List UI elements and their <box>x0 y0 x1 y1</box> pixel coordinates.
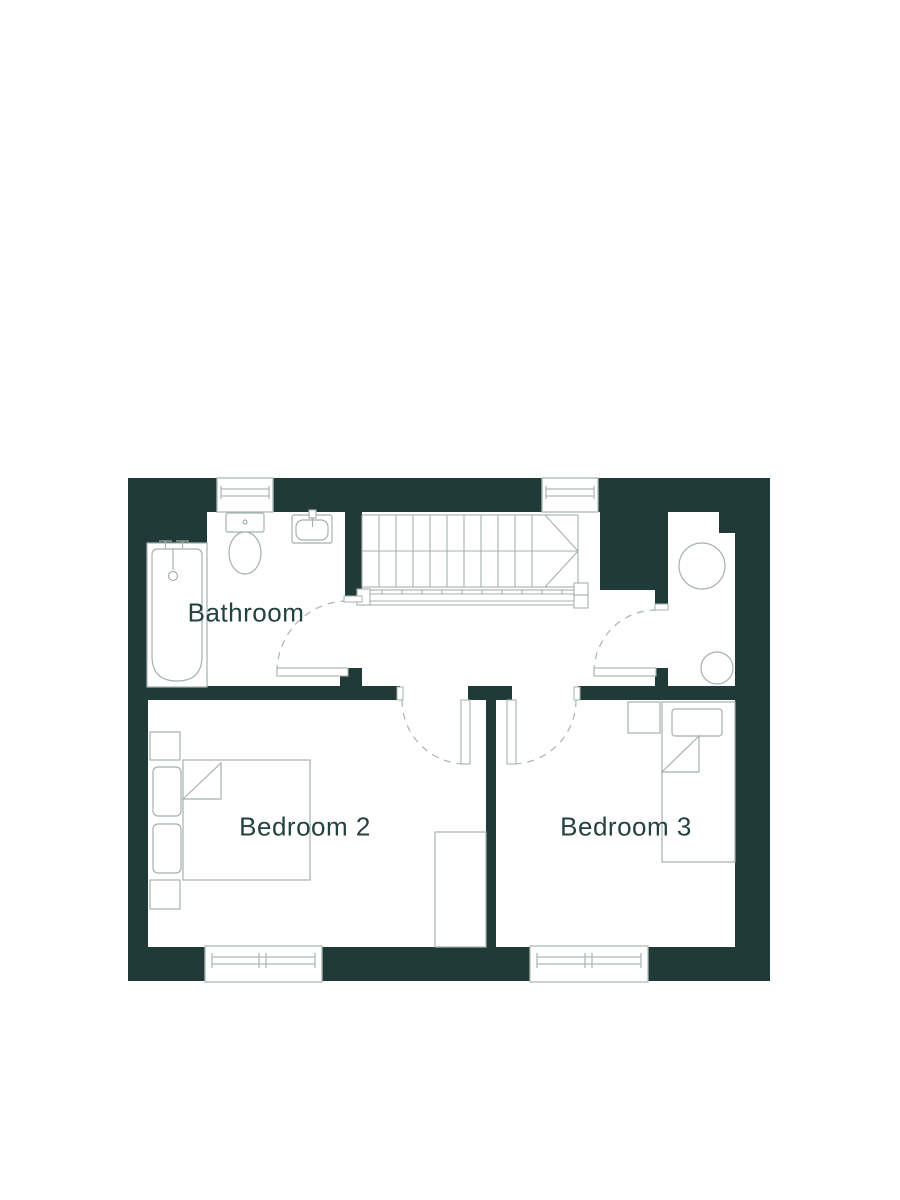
wall-bedroom-divider <box>486 700 496 947</box>
door-leaf <box>507 700 516 764</box>
bedside-table <box>150 880 180 909</box>
door-leaf <box>594 668 656 676</box>
wardrobe <box>435 832 486 947</box>
room-label-bedroom-2: Bedroom 2 <box>239 812 371 843</box>
window-top-landing <box>542 478 598 512</box>
wall-landing-center <box>468 686 512 700</box>
door-leaf <box>461 700 470 764</box>
pillow <box>153 824 181 873</box>
newel-post-right-1 <box>574 583 588 595</box>
door-jamb <box>655 604 668 610</box>
basin-tap <box>309 510 316 518</box>
newel-post-right-2 <box>574 595 588 608</box>
staircase <box>362 515 578 587</box>
basin <box>292 510 332 543</box>
bath-drain <box>169 572 178 581</box>
bedroom-3-door <box>507 687 580 764</box>
wall-cupboard-notch <box>719 512 735 533</box>
room-label-bedroom-3: Bedroom 3 <box>560 812 692 843</box>
cupboard-door <box>594 604 668 676</box>
window-bedroom-3 <box>530 946 648 982</box>
room-label-bathroom: Bathroom <box>188 598 305 629</box>
toilet <box>226 513 264 574</box>
bedside-table <box>150 732 180 760</box>
pillow <box>153 767 181 816</box>
wall-left <box>128 478 148 981</box>
floor-plan-svg <box>0 0 900 1200</box>
cupboard-cylinder-small <box>701 652 733 684</box>
floor-plan: Bathroom Bedroom 2 Bedroom 3 <box>0 0 900 1200</box>
bedroom-2-door <box>397 687 470 764</box>
wall-corner-bathroom <box>128 478 207 543</box>
wall-cupboard-stub-bottom <box>655 668 668 686</box>
door-jamb <box>574 687 580 700</box>
cupboard-cylinder-large <box>679 543 725 589</box>
door-jamb <box>397 687 403 700</box>
wall-bathroom-bottom <box>128 686 400 700</box>
pillow <box>672 709 722 736</box>
window-top-bathroom <box>217 478 273 512</box>
window-bedroom-2 <box>205 946 322 982</box>
wall-stair-cupboard-block <box>600 512 668 590</box>
door-jamb <box>344 596 362 602</box>
wall-right <box>735 478 770 981</box>
wall-bathroom-right <box>345 512 362 601</box>
bedside-table <box>628 702 660 733</box>
wall-landing-right <box>578 686 735 700</box>
door-leaf <box>277 668 348 676</box>
